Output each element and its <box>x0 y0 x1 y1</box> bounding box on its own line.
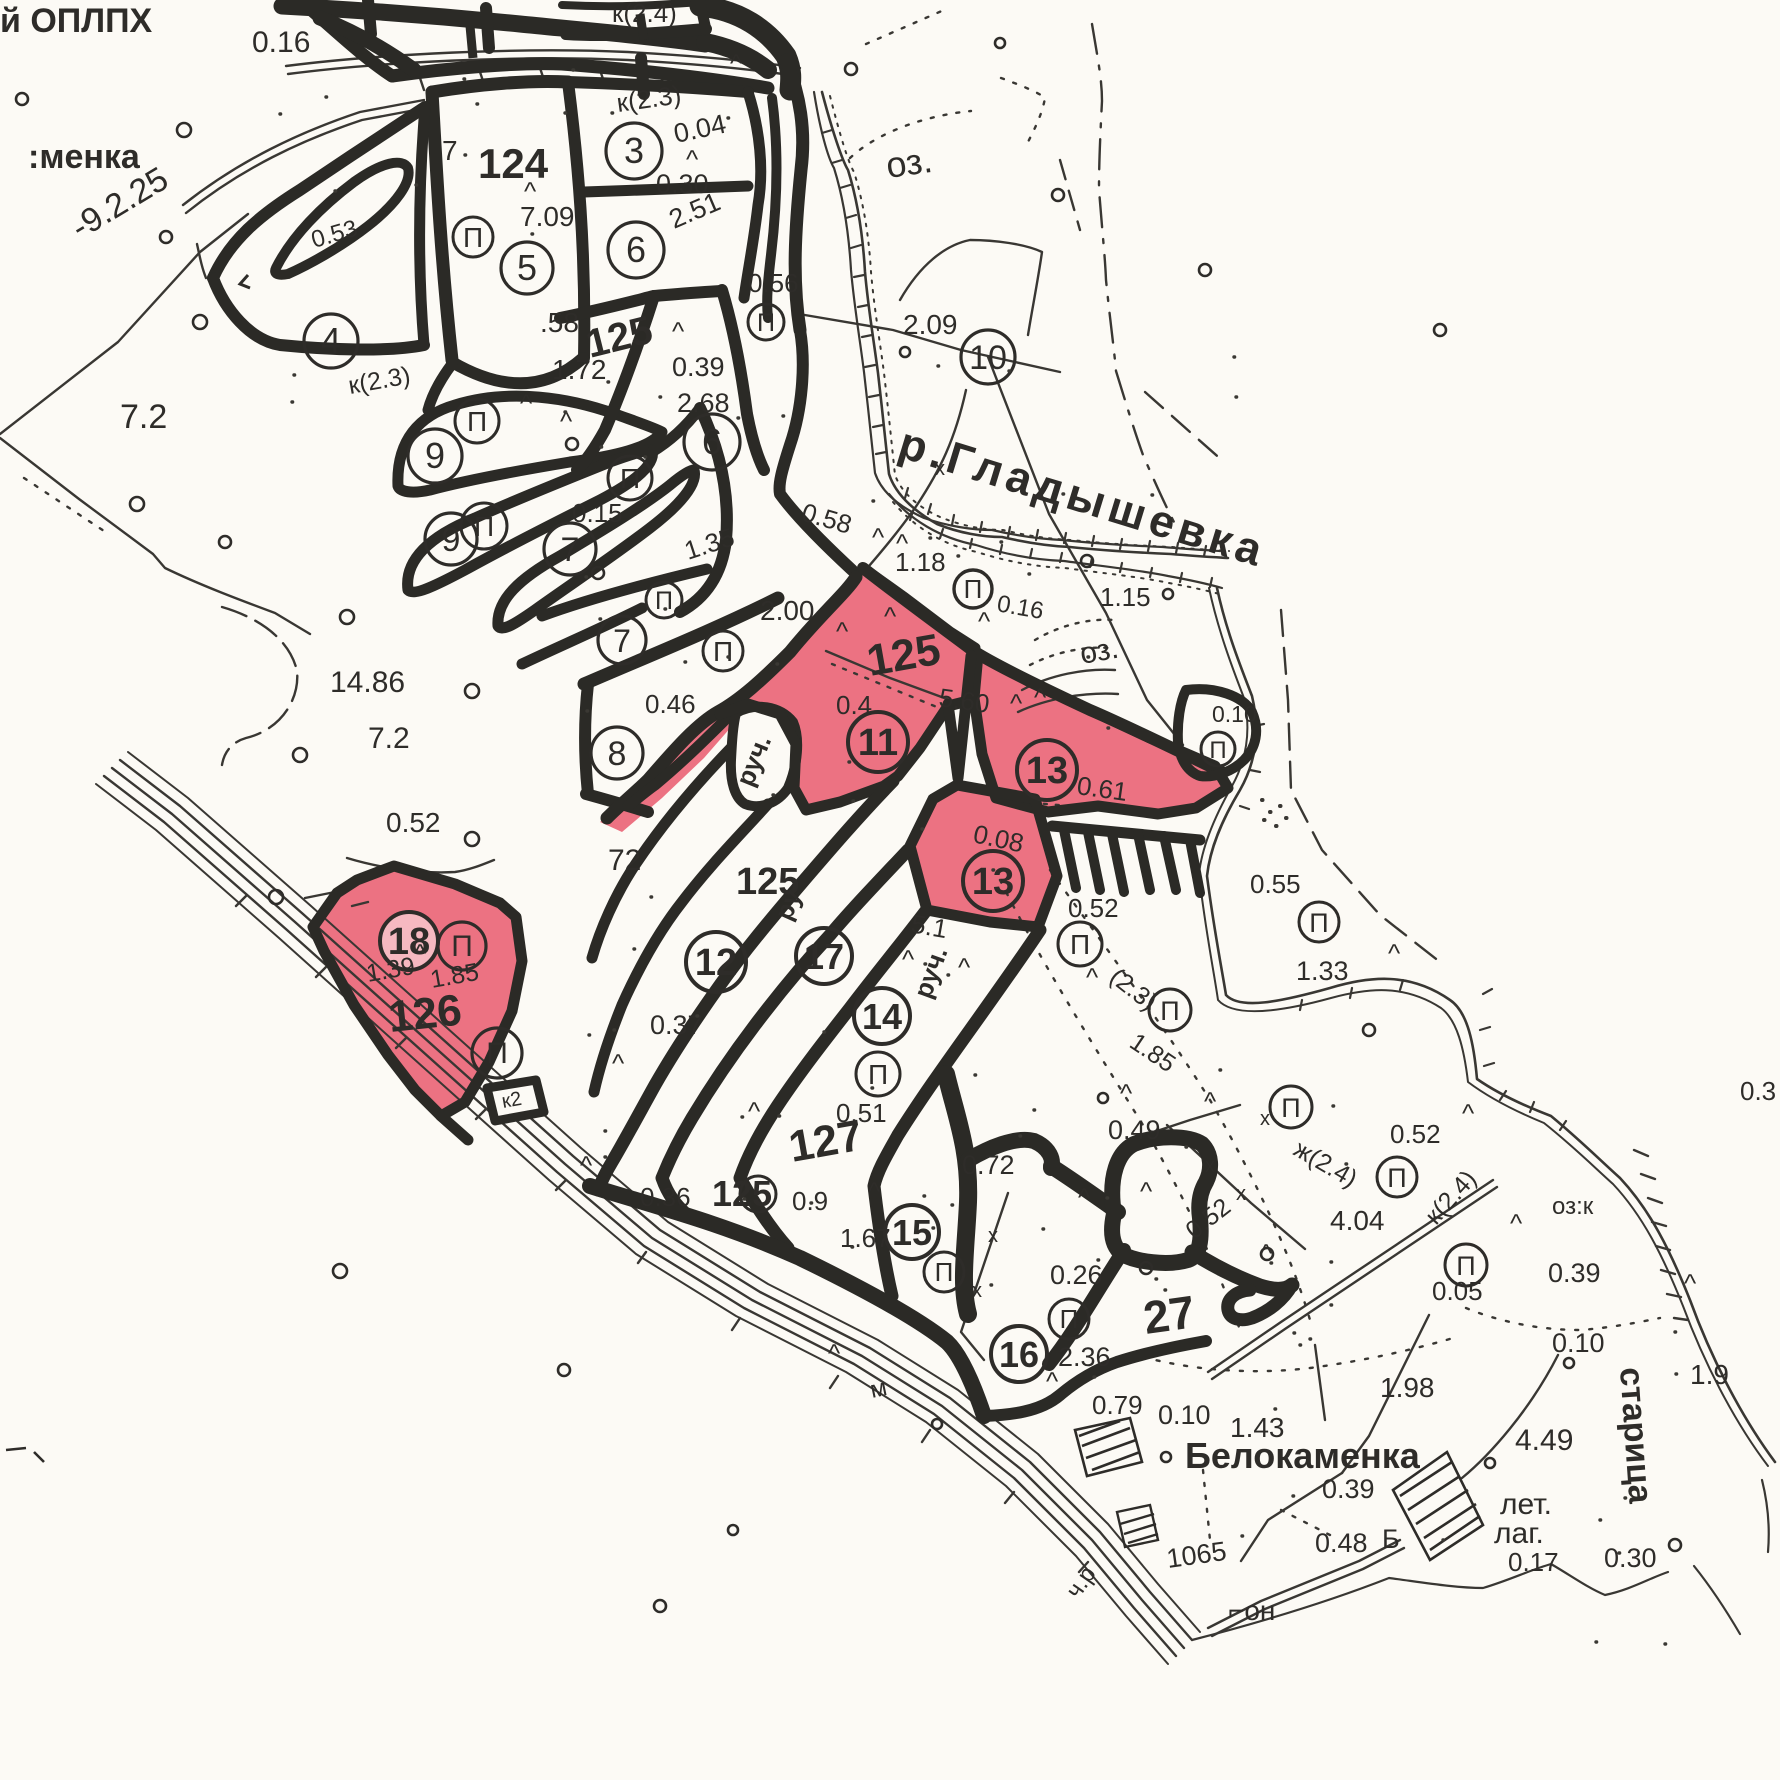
svg-text:^: ^ <box>686 144 699 174</box>
svg-text:0.30: 0.30 <box>1604 1543 1657 1573</box>
svg-text:Б: Б <box>1382 1524 1400 1554</box>
svg-text:.58: .58 <box>540 307 579 338</box>
svg-text:лаг.: лаг. <box>1494 1517 1544 1550</box>
svg-text:7.2: 7.2 <box>120 398 167 436</box>
svg-text:7: 7 <box>613 623 631 659</box>
svg-text:0.48: 0.48 <box>1315 1528 1368 1558</box>
svg-text:13: 13 <box>972 861 1014 903</box>
svg-text:^: ^ <box>884 601 897 631</box>
svg-text:^: ^ <box>868 1176 881 1206</box>
svg-text:0.10: 0.10 <box>1552 1328 1605 1358</box>
svg-text:0.55: 0.55 <box>1250 869 1301 899</box>
svg-text::менка: :менка <box>28 138 141 176</box>
svg-text:^: ^ <box>902 944 915 974</box>
svg-text:0.3: 0.3 <box>1740 1076 1776 1106</box>
svg-text:оз:к: оз:к <box>1552 1193 1594 1220</box>
svg-text:0.16: 0.16 <box>252 26 310 59</box>
svg-text:^: ^ <box>748 1096 761 1126</box>
svg-text:^: ^ <box>1046 1366 1059 1396</box>
svg-text:^: ^ <box>896 528 909 558</box>
svg-text:2.00: 2.00 <box>760 595 815 626</box>
svg-text:7: 7 <box>561 531 580 569</box>
svg-text:П: П <box>757 309 775 337</box>
svg-text:126: 126 <box>386 986 464 1042</box>
svg-text:оз.: оз. <box>1077 632 1121 671</box>
svg-text:1.67: 1.67 <box>840 1223 891 1253</box>
svg-text:0.10: 0.10 <box>1212 701 1257 727</box>
svg-text:0.39: 0.39 <box>672 352 725 382</box>
svg-text:15: 15 <box>892 1212 932 1253</box>
svg-text:72: 72 <box>608 844 641 877</box>
svg-text:П: П <box>1387 1163 1406 1193</box>
svg-text:^: ^ <box>1684 1268 1697 1298</box>
svg-text:П: П <box>620 463 640 494</box>
svg-text:0.17: 0.17 <box>1508 1547 1559 1577</box>
svg-text:2.36: 2.36 <box>1058 1342 1111 1372</box>
svg-text:0.39: 0.39 <box>1548 1258 1601 1288</box>
svg-text:0.52: 0.52 <box>386 807 441 838</box>
svg-text:^: ^ <box>1140 1176 1153 1206</box>
svg-text:оз.: оз. <box>883 139 934 186</box>
svg-text:0.9: 0.9 <box>792 1186 828 1216</box>
svg-text:^: ^ <box>560 406 573 436</box>
svg-text:^: ^ <box>414 938 427 968</box>
svg-text:7.2: 7.2 <box>368 722 410 755</box>
svg-text:П: П <box>1060 1304 1079 1334</box>
svg-text:^: ^ <box>1462 1098 1475 1128</box>
svg-text:4.49: 4.49 <box>1515 1424 1573 1457</box>
svg-text:3: 3 <box>624 130 644 171</box>
svg-text:9: 9 <box>425 435 445 476</box>
svg-text:П: П <box>1209 737 1226 764</box>
svg-text:x: x <box>972 1280 982 1302</box>
svg-text:0.52: 0.52 <box>1068 893 1119 923</box>
svg-text:^: ^ <box>1510 1208 1523 1238</box>
svg-text:П: П <box>868 1059 888 1090</box>
svg-text:2.09: 2.09 <box>903 309 958 340</box>
svg-text:П: П <box>1070 929 1090 960</box>
svg-text:7: 7 <box>442 135 458 166</box>
svg-text:^: ^ <box>672 316 685 346</box>
svg-text:6: 6 <box>626 229 646 270</box>
svg-text:П: П <box>1309 908 1328 938</box>
svg-text:^: ^ <box>1388 938 1401 968</box>
svg-text:11: 11 <box>858 722 898 764</box>
svg-text:П: П <box>467 406 487 437</box>
svg-text:0.52: 0.52 <box>1390 1119 1441 1149</box>
svg-text:9: 9 <box>442 521 461 559</box>
svg-text:^: ^ <box>958 952 971 982</box>
svg-text:2.68: 2.68 <box>677 388 730 418</box>
svg-text:0.37: 0.37 <box>650 1010 703 1040</box>
svg-text:4.04: 4.04 <box>1330 1205 1385 1236</box>
svg-text:П: П <box>964 574 983 604</box>
svg-text:0.56: 0.56 <box>748 268 799 298</box>
svg-text:0.26: 0.26 <box>1050 1260 1103 1290</box>
svg-text:^: ^ <box>1010 688 1023 718</box>
svg-text:x: x <box>935 458 945 480</box>
svg-text:1.72: 1.72 <box>552 354 607 385</box>
svg-text:0.79: 0.79 <box>1092 1390 1143 1420</box>
svg-text:0.49: 0.49 <box>1108 1115 1161 1145</box>
svg-text:П: П <box>713 636 733 667</box>
svg-text:П: П <box>474 511 494 542</box>
svg-text:x: x <box>988 1225 998 1247</box>
svg-text:^: ^ <box>1086 962 1099 992</box>
svg-text:^: ^ <box>978 606 991 636</box>
svg-text:13: 13 <box>1026 750 1068 792</box>
svg-text:^: ^ <box>1034 682 1047 712</box>
svg-text:Белокаменка: Белокаменка <box>1185 1435 1421 1476</box>
svg-text:^: ^ <box>612 1048 625 1078</box>
svg-text:^: ^ <box>872 522 885 552</box>
svg-text:x: x <box>1260 1108 1270 1130</box>
svg-text:^: ^ <box>1120 1078 1133 1108</box>
svg-text:й ОПЛПХ: й ОПЛПХ <box>0 2 153 40</box>
svg-text:5.1: 5.1 <box>909 908 950 944</box>
svg-text:8: 8 <box>608 735 627 773</box>
svg-text:6: 6 <box>702 421 722 462</box>
svg-text:П: П <box>1281 1093 1300 1123</box>
svg-text:0.72: 0.72 <box>962 1150 1015 1180</box>
svg-text:10: 10 <box>969 339 1007 377</box>
svg-text:27: 27 <box>1140 1285 1198 1344</box>
svg-text:12: 12 <box>695 942 737 984</box>
svg-text:П: П <box>935 1257 954 1287</box>
svg-text:^: ^ <box>828 1338 841 1368</box>
svg-text:П: П <box>486 1037 508 1070</box>
svg-text:5: 5 <box>517 247 537 288</box>
svg-text:П: П <box>655 587 673 615</box>
svg-text:^: ^ <box>1204 1086 1217 1116</box>
svg-text:^: ^ <box>524 176 537 206</box>
svg-text:125: 125 <box>712 1173 772 1214</box>
svg-text:^: ^ <box>1078 1182 1091 1212</box>
svg-text:16: 16 <box>999 1334 1039 1375</box>
svg-text:1.9: 1.9 <box>1690 1359 1729 1390</box>
svg-text:14.86: 14.86 <box>330 666 405 699</box>
svg-text:^: ^ <box>520 388 533 418</box>
svg-text:П: П <box>1160 996 1179 1026</box>
svg-text:x: x <box>1205 1155 1215 1177</box>
svg-text:^: ^ <box>836 616 849 646</box>
svg-text:0.39: 0.39 <box>1322 1474 1375 1504</box>
svg-text:124: 124 <box>478 140 549 187</box>
svg-text:17: 17 <box>804 936 844 977</box>
svg-text:1.15: 1.15 <box>1100 582 1151 612</box>
svg-text:0.36: 0.36 <box>640 1182 691 1212</box>
svg-text:1.98: 1.98 <box>1380 1372 1435 1403</box>
svg-text:^: ^ <box>580 1150 593 1180</box>
svg-text:x: x <box>1236 1183 1246 1205</box>
svg-text:0.05: 0.05 <box>1432 1276 1483 1306</box>
svg-text:4: 4 <box>321 320 341 361</box>
svg-text:0.46: 0.46 <box>645 689 696 719</box>
svg-text:1.33: 1.33 <box>1296 956 1349 986</box>
svg-text:⌐он: ⌐он <box>1228 1595 1275 1626</box>
svg-text:14: 14 <box>862 996 902 1037</box>
svg-text:П: П <box>463 222 483 253</box>
svg-text:к2: к2 <box>500 1088 523 1113</box>
svg-text:0.10: 0.10 <box>1158 1400 1211 1430</box>
svg-text:^: ^ <box>730 48 743 78</box>
